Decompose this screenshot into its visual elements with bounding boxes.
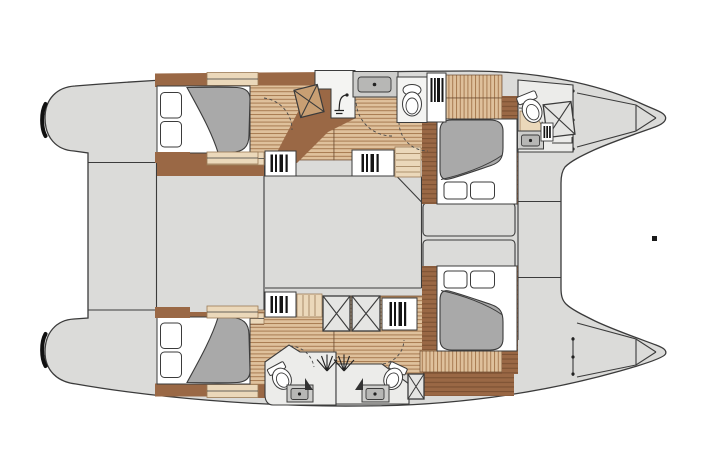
faucet-dot bbox=[373, 83, 377, 87]
foot-band bbox=[155, 152, 190, 163]
pillow bbox=[161, 122, 182, 148]
faucet-dot bbox=[529, 139, 532, 142]
catamaran-floorplan: Catamaran interior layout — overhead acc… bbox=[0, 0, 705, 470]
floorplan-svg bbox=[0, 0, 705, 470]
companionway-steps bbox=[297, 294, 322, 317]
trim-bottom-bow bbox=[423, 372, 514, 396]
aft-cabin-starboard bbox=[155, 306, 258, 398]
headboard-band bbox=[155, 74, 207, 87]
sunpad bbox=[423, 203, 515, 236]
toilet-icon bbox=[403, 85, 422, 117]
pillow bbox=[471, 182, 495, 199]
side-trim bbox=[422, 120, 437, 204]
image-speck bbox=[652, 236, 657, 241]
port-hull-forward-head bbox=[516, 80, 575, 152]
shower-pan bbox=[408, 374, 424, 399]
floor-bow-top bbox=[446, 75, 502, 98]
faucet-dot bbox=[373, 392, 376, 395]
faucet-dot bbox=[298, 392, 301, 395]
pillow bbox=[444, 182, 467, 199]
aft-cabin bbox=[155, 73, 258, 165]
shower-pan bbox=[352, 296, 380, 331]
shower-pan bbox=[323, 296, 350, 331]
pillow bbox=[161, 93, 182, 119]
companionway-steps bbox=[395, 147, 421, 177]
forward-cabin-starboard bbox=[420, 266, 518, 374]
